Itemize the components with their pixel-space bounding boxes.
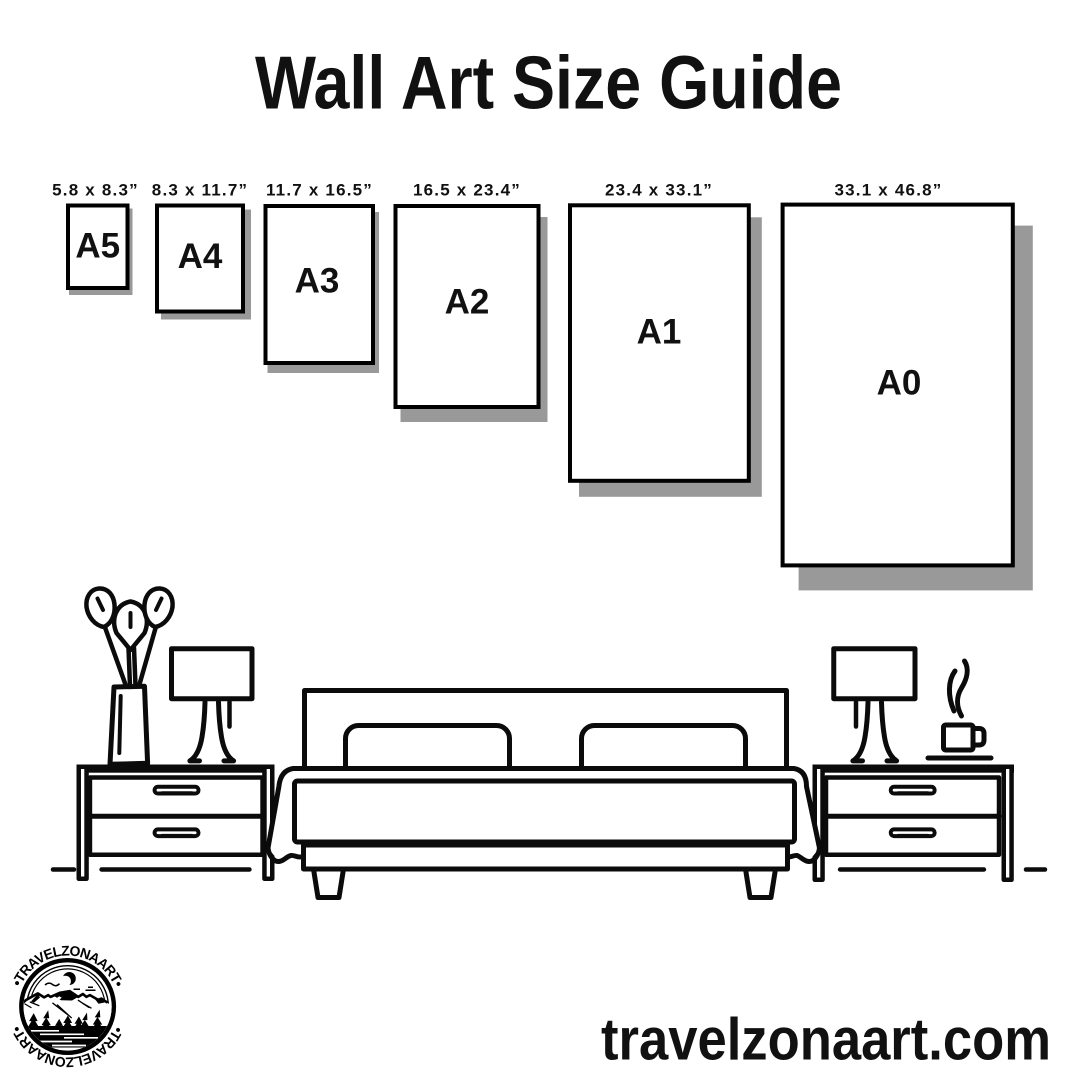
svg-text:23.4 x 33.1”: 23.4 x 33.1”: [605, 181, 713, 200]
svg-text:33.1 x 46.8”: 33.1 x 46.8”: [835, 181, 943, 200]
svg-text:A1: A1: [637, 312, 682, 351]
svg-text:11.7 x 16.5”: 11.7 x 16.5”: [266, 181, 373, 200]
svg-text:16.5 x 23.4”: 16.5 x 23.4”: [413, 181, 521, 200]
svg-text:8.3 x 11.7”: 8.3 x 11.7”: [152, 181, 248, 200]
svg-text:travelzonaart.com: travelzonaart.com: [601, 1007, 1051, 1073]
svg-text:A3: A3: [295, 261, 340, 300]
svg-text:A5: A5: [75, 226, 120, 265]
svg-text:A2: A2: [445, 282, 490, 321]
svg-text:A0: A0: [877, 364, 922, 403]
svg-text:5.8 x 8.3”: 5.8 x 8.3”: [52, 181, 139, 200]
svg-text:A4: A4: [178, 237, 223, 276]
svg-text:Wall Art Size Guide: Wall Art Size Guide: [255, 41, 842, 125]
